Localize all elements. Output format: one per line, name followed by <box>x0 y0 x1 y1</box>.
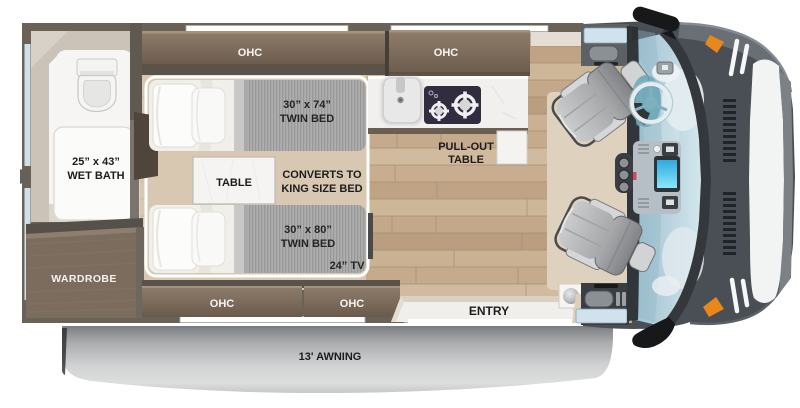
svg-text:KING SIZE BED: KING SIZE BED <box>281 183 362 195</box>
svg-text:CONVERTS TO: CONVERTS TO <box>282 169 362 181</box>
svg-text:TABLE: TABLE <box>448 154 484 166</box>
svg-text:OHC: OHC <box>434 47 459 59</box>
svg-text:30” x 80”: 30” x 80” <box>284 224 332 236</box>
svg-text:WARDROBE: WARDROBE <box>51 273 117 285</box>
svg-text:OHC: OHC <box>238 47 263 59</box>
svg-text:25” x 43”: 25” x 43” <box>72 156 120 168</box>
svg-text:13' AWNING: 13' AWNING <box>299 351 362 363</box>
svg-text:TABLE: TABLE <box>216 177 252 189</box>
svg-text:PULL-OUT: PULL-OUT <box>438 141 494 153</box>
svg-text:TWIN BED: TWIN BED <box>281 238 335 250</box>
svg-text:OHC: OHC <box>210 298 235 310</box>
svg-text:24” TV: 24” TV <box>330 260 366 272</box>
svg-text:OHC: OHC <box>340 298 365 310</box>
svg-text:WET BATH: WET BATH <box>67 170 124 182</box>
svg-text:TWIN BED: TWIN BED <box>280 113 334 125</box>
svg-text:ENTRY: ENTRY <box>469 304 509 318</box>
svg-text:30” x 74”: 30” x 74” <box>283 99 331 111</box>
